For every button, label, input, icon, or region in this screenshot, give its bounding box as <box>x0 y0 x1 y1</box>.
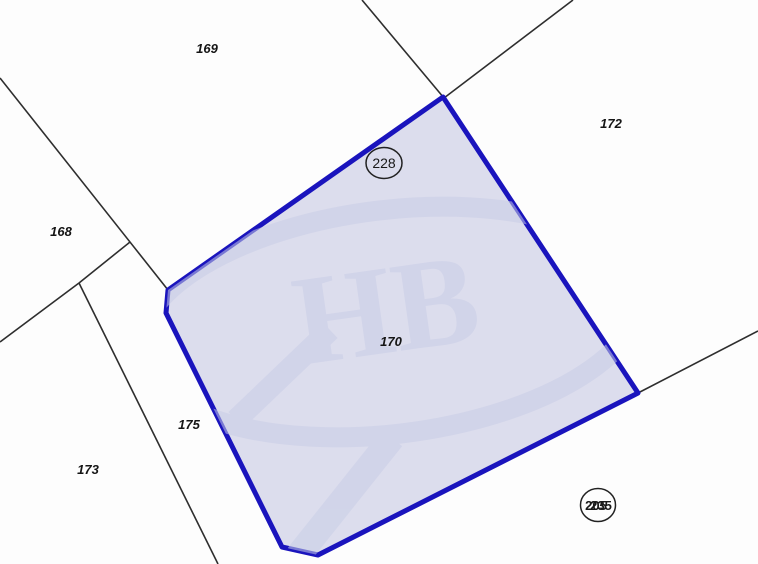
parcel-label-169: 169 <box>196 41 218 56</box>
parcel-label-175: 175 <box>178 417 200 432</box>
parcel-label-173: 173 <box>77 462 99 477</box>
watermark-letters: НВ <box>285 226 488 392</box>
circled-label-228-text: 228 <box>372 155 396 171</box>
parcel-label-168: 168 <box>50 224 72 239</box>
cadastral-map: НВ 169 172 168 175 173 170 228 205 235 <box>0 0 758 564</box>
map-canvas: НВ 169 172 168 175 173 170 228 205 235 <box>0 0 758 564</box>
circled-label-235-text: 235 <box>590 498 612 513</box>
parcel-label-170: 170 <box>380 334 402 349</box>
parcel-label-172: 172 <box>600 116 622 131</box>
